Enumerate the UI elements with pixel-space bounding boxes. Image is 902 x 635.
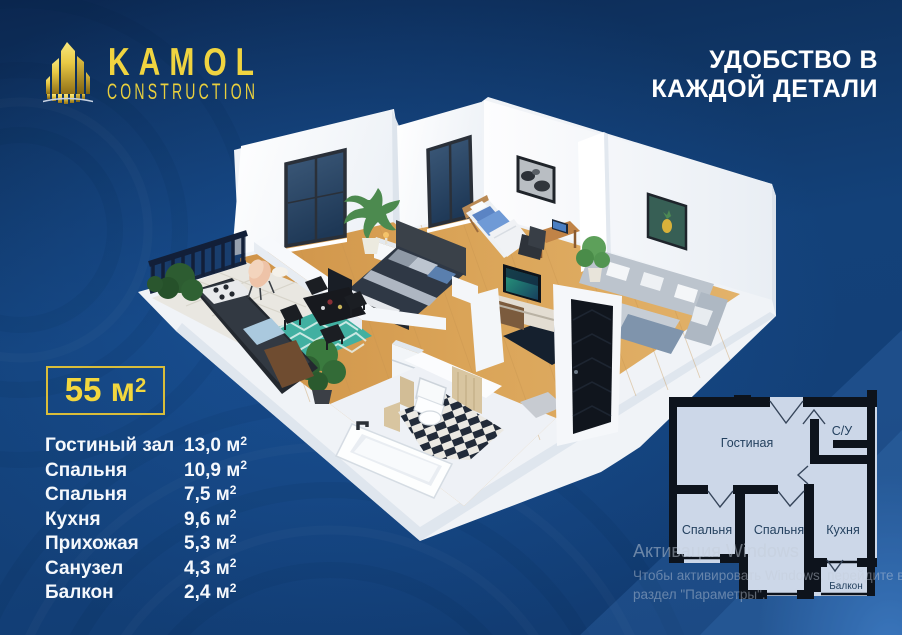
svg-text:Гостиная: Гостиная: [721, 436, 773, 450]
svg-text:Спальня: Спальня: [682, 523, 732, 537]
svg-text:С/У: С/У: [832, 424, 853, 438]
svg-text:Кухня: Кухня: [826, 523, 859, 537]
svg-text:Спальня: Спальня: [754, 523, 804, 537]
